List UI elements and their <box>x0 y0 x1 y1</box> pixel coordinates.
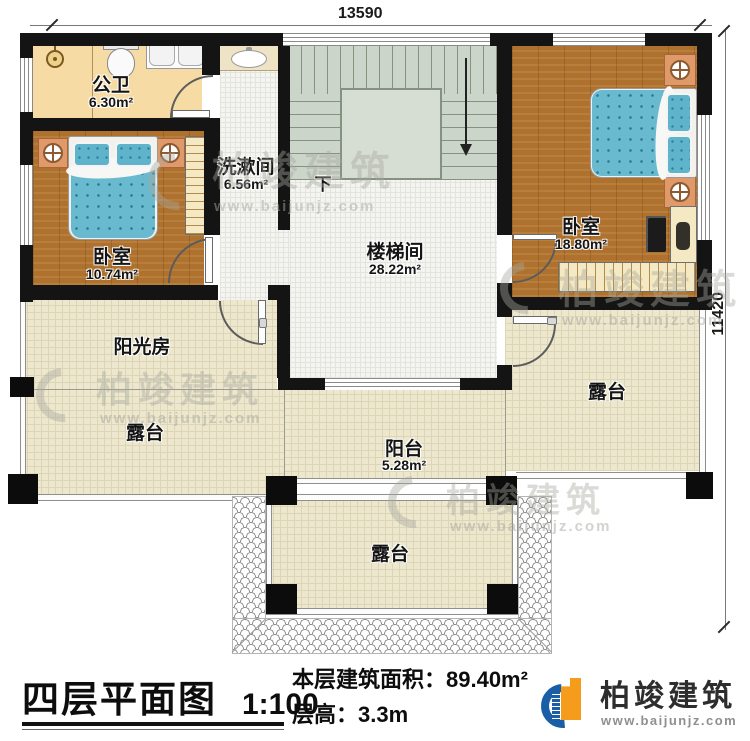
pillow <box>115 142 153 167</box>
column <box>487 584 518 614</box>
wall-hall-west <box>277 300 290 378</box>
sunroom-door-knob <box>259 318 267 328</box>
terrace-right-bottom-railing <box>516 472 688 479</box>
nightstand <box>664 54 696 86</box>
bathroom-label: 公卫 <box>92 76 130 95</box>
sheet-title: 四层平面图 <box>22 681 217 718</box>
column <box>686 472 713 499</box>
stair-treads-right <box>442 94 497 180</box>
bedroom-right-area: 18.80m² <box>555 237 607 251</box>
watermark-url: www.baijunjz.com <box>562 312 723 329</box>
tv-icon <box>646 216 666 252</box>
wall-bathroom-washroom <box>202 46 220 75</box>
watermark-brand: 柏竣建筑 <box>212 152 396 192</box>
column <box>10 377 34 397</box>
watermark-url: www.baijunjz.com <box>450 518 611 535</box>
nightstand <box>38 138 68 168</box>
floor-area-text: 本层建筑面积：89.40m² <box>292 669 528 691</box>
brand-name: 柏竣建筑 <box>600 682 736 712</box>
roof-tile-band-bottom <box>232 618 552 654</box>
desk-chair <box>676 222 690 250</box>
wall-hall-east-lower <box>497 365 512 390</box>
window-left-bathroom <box>20 58 33 112</box>
title-underline-thick <box>22 722 284 726</box>
bed-left-blanket <box>71 168 155 238</box>
terrace-label-right: 露台 <box>588 383 626 402</box>
column <box>266 584 297 614</box>
pillow <box>666 93 692 133</box>
wall-hall-bottom-west <box>278 378 325 390</box>
stairwell-label: 楼梯间 <box>366 243 423 262</box>
terrace-bottom-bottom-railing <box>266 608 518 615</box>
lamp-icon <box>670 60 690 80</box>
wall-sunroom-top-east <box>268 285 290 300</box>
floor-plan-sheet: 13590 11420 下 <box>0 0 750 741</box>
terrace-label-bottom: 露台 <box>371 545 409 564</box>
watermark-brand: 柏竣建筑 <box>446 484 606 518</box>
watermark-url: www.baijunjz.com <box>100 410 261 427</box>
window-hall-bottom <box>325 378 460 390</box>
window-right-bedroom <box>697 115 712 240</box>
dimension-top: 13590 <box>338 5 383 23</box>
bathroom-area: 6.30m² <box>89 95 133 109</box>
window-top-stairs <box>283 33 490 46</box>
window-top-bedroom-right <box>553 33 645 46</box>
stair-direction-line <box>465 58 467 144</box>
terrace-door-knob <box>547 317 557 325</box>
dimension-tick <box>718 621 731 634</box>
lamp-icon <box>43 143 63 163</box>
shower-head-dot <box>53 57 57 61</box>
column <box>8 474 38 504</box>
bedroom-left-area: 10.74m² <box>86 267 138 281</box>
wall-hall-east-upper <box>497 33 512 235</box>
dimension-top-line <box>30 25 712 26</box>
stairwell-area: 28.22m² <box>369 262 421 276</box>
wall-bathroom-bottom <box>20 118 220 131</box>
floor-height-text: 层高：3.3m <box>292 704 408 726</box>
sunroom-label: 阳光房 <box>113 338 170 357</box>
bedroom-right-label: 卧室 <box>562 218 600 237</box>
lamp-icon <box>670 182 690 202</box>
bedroom-left-door-leaf <box>205 237 213 283</box>
brand-website: www.baijunjz.com <box>601 714 737 727</box>
bedroom-left-label: 卧室 <box>93 248 131 267</box>
brand-logo-icon <box>541 676 593 732</box>
watermark-url: www.baijunjz.com <box>214 198 375 215</box>
watermark-brand: 柏竣建筑 <box>96 372 264 408</box>
brand-logo-tower-blue <box>552 692 560 722</box>
balcony-area: 5.28m² <box>382 458 426 472</box>
watermark-brand: 柏竣建筑 <box>558 270 742 310</box>
pillow <box>73 142 111 167</box>
toilet-bowl <box>107 48 135 78</box>
pillow <box>666 135 692 175</box>
stair-direction-arrowhead <box>460 144 472 156</box>
column <box>266 476 297 505</box>
washroom-basin <box>231 50 267 68</box>
title-underline-thin <box>22 729 284 730</box>
nightstand <box>664 176 696 208</box>
washroom-faucet <box>246 47 252 51</box>
bedroom-right-door-leaf <box>513 234 557 240</box>
wall-sunroom-top <box>20 285 218 300</box>
window-left-bedroom <box>20 165 33 245</box>
balcony-terrace-line <box>505 390 506 479</box>
bathroom-door-leaf <box>172 110 210 118</box>
dimension-tick <box>718 25 731 38</box>
terrace-right-railing <box>699 310 706 472</box>
